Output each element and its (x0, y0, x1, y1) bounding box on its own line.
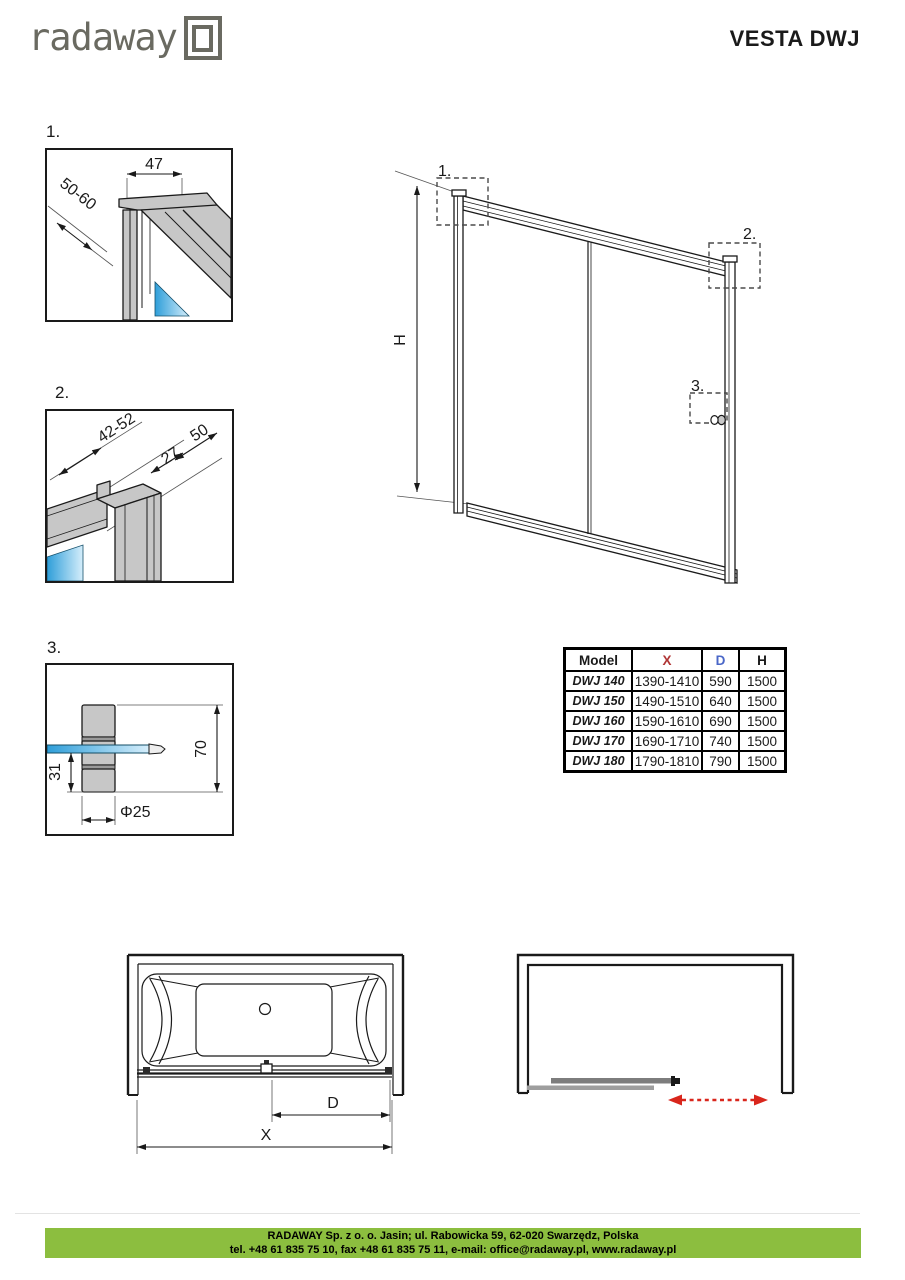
dim-42-52: 42-52 (95, 410, 139, 447)
dim-27: 27 (158, 444, 182, 468)
logo-wordmark: radaway (28, 14, 177, 62)
footer-bar: RADAWAY Sp. z o. o. Jasin; ul. Rabowicka… (45, 1228, 861, 1258)
dim-70: 70 (193, 740, 210, 758)
footer-address: RADAWAY Sp. z o. o. Jasin; ul. Rabowicka… (45, 1230, 861, 1244)
detail-1-label: 1. (46, 122, 60, 142)
dim-H: H (392, 334, 409, 346)
page-title: VESTA DWJ (730, 26, 860, 52)
left-post-cap (452, 190, 466, 196)
handle-knob (671, 1076, 675, 1086)
callout-3: 3. (691, 378, 704, 395)
dim-31: 31 (47, 763, 64, 781)
top-rail (463, 196, 726, 276)
table-row: DWJ 140 1390-1410 590 1500 (565, 671, 786, 691)
glass-pane (155, 282, 189, 316)
knob-bottom (82, 769, 115, 792)
door-perspective-drawing: H 1. 2. 3. (385, 140, 805, 650)
detail-3-drawing: 70 31 Φ25 (45, 663, 234, 836)
sliding-schematic (510, 950, 810, 1110)
right-post-cap (723, 256, 737, 262)
table-row: DWJ 160 1590-1610 690 1500 (565, 711, 786, 731)
size-table: Model X D H DWJ 140 1390-1410 590 1500 D… (563, 647, 787, 773)
detail-2-label: 2. (55, 383, 69, 403)
door-knob (718, 415, 726, 424)
logo-square-icon (184, 16, 222, 60)
fixed-panel (527, 1086, 654, 1091)
dim-50-60: 50-60 (56, 175, 99, 214)
table-row: DWJ 170 1690-1710 740 1500 (565, 731, 786, 751)
radaway-logo: radaway (28, 14, 222, 62)
table-row: DWJ 180 1790-1810 790 1500 (565, 751, 786, 772)
detail-3-label: 3. (47, 638, 61, 658)
dim-X: X (261, 1127, 272, 1144)
wall-outline (518, 955, 793, 1093)
footer-divider (15, 1213, 860, 1214)
dim-50: 50 (187, 421, 211, 445)
bathtub-plan-view: D X (120, 950, 412, 1162)
detail-2-drawing: 42-52 50 27 (45, 409, 234, 583)
dim-diameter: Φ25 (120, 804, 151, 821)
callout-2: 2. (743, 226, 756, 243)
callout-1: 1. (438, 163, 451, 180)
footer-contact: tel. +48 61 835 75 10, fax +48 61 835 75… (45, 1244, 861, 1258)
left-post (454, 196, 463, 513)
rail-profile (141, 205, 231, 298)
right-post (725, 262, 735, 583)
glass-pane (47, 545, 83, 581)
glass-pane (47, 745, 149, 753)
bottom-rail (467, 503, 737, 583)
dim-47: 47 (145, 156, 163, 173)
table-row: DWJ 150 1490-1510 640 1500 (565, 691, 786, 711)
knob-top (82, 705, 115, 737)
dim-D: D (327, 1095, 339, 1112)
tub-floor (196, 984, 332, 1056)
col-model: Model (565, 649, 633, 672)
col-h: H (739, 649, 786, 672)
detail-1-drawing: 47 50-60 (45, 148, 233, 322)
table-header-row: Model X D H (565, 649, 786, 672)
col-x: X (632, 649, 702, 672)
sliding-panel (551, 1078, 673, 1084)
drain (260, 1004, 271, 1015)
door-handle-plan (261, 1064, 272, 1073)
col-d: D (702, 649, 739, 672)
screw (149, 744, 165, 754)
